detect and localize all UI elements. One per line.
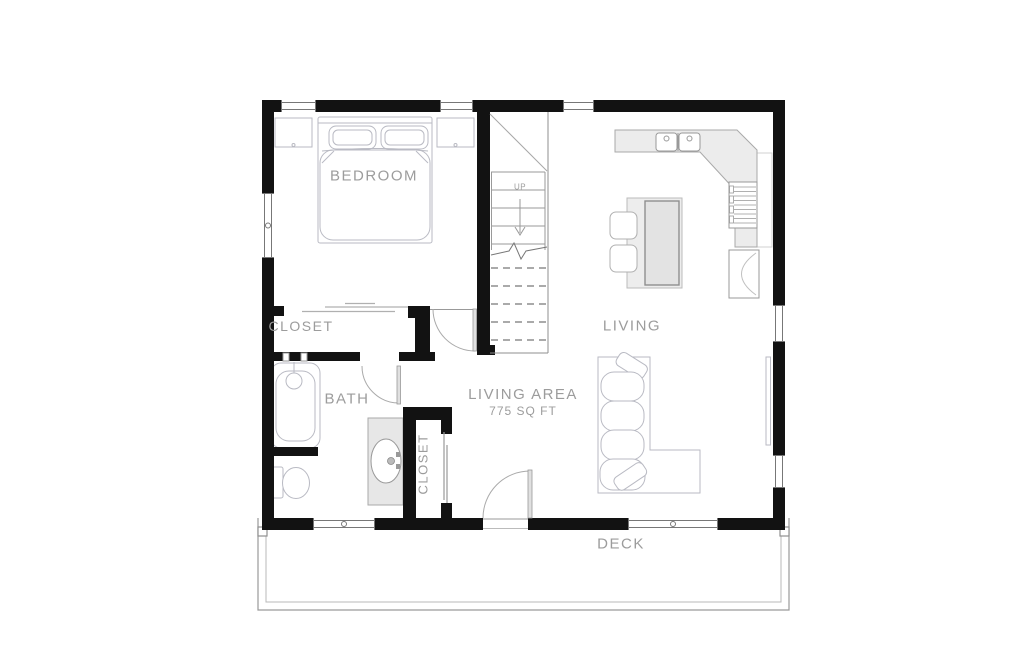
- stove: [729, 182, 757, 228]
- refrigerator: [729, 250, 759, 298]
- closet-sliding-door: [444, 432, 447, 503]
- bathtub: [271, 362, 320, 448]
- living-area-title: LIVING AREA: [468, 386, 578, 403]
- stairs-up-label: UP: [514, 183, 526, 192]
- vanity-sink: [368, 418, 403, 505]
- floor-plan: BEDROOM CLOSET BATH CLOSET LIVING AREA 7…: [0, 0, 1024, 669]
- closet-lower-label: CLOSET: [416, 433, 431, 494]
- toilet: [269, 467, 310, 499]
- deck-label: DECK: [597, 536, 645, 553]
- deck-outline: [258, 518, 789, 610]
- window: [773, 305, 785, 342]
- stool: [610, 245, 637, 272]
- window: [262, 193, 274, 258]
- deck-door-opening: [483, 518, 528, 530]
- kitchen-sink: [656, 133, 700, 151]
- stool: [610, 212, 637, 239]
- kitchen-counter: [610, 130, 772, 298]
- bedroom-label: BEDROOM: [330, 168, 418, 185]
- bath-label: BATH: [325, 391, 370, 408]
- living-label: LIVING: [603, 318, 661, 335]
- floor-plan-drawing: [0, 0, 1024, 669]
- kitchen-island: [610, 198, 682, 288]
- deck-door: [483, 470, 532, 518]
- living-area-sqft: 775 SQ FT: [489, 404, 557, 418]
- window: [563, 100, 594, 112]
- bedroom-door: [430, 309, 477, 351]
- window: [773, 455, 785, 488]
- window: [313, 518, 375, 530]
- staircase: [490, 112, 548, 353]
- stair-direction-arrow: [515, 199, 525, 235]
- closet-upper-label: CLOSET: [268, 318, 333, 334]
- tv-unit: [766, 357, 771, 445]
- tall-cabinet: [757, 153, 772, 247]
- window: [628, 518, 718, 530]
- living-area-label: LIVING AREA 775 SQ FT: [468, 386, 578, 418]
- sectional-sofa: [598, 351, 700, 493]
- window: [440, 100, 473, 112]
- closet-rod: [302, 304, 408, 312]
- stair-wall: [477, 112, 490, 355]
- window: [281, 100, 316, 112]
